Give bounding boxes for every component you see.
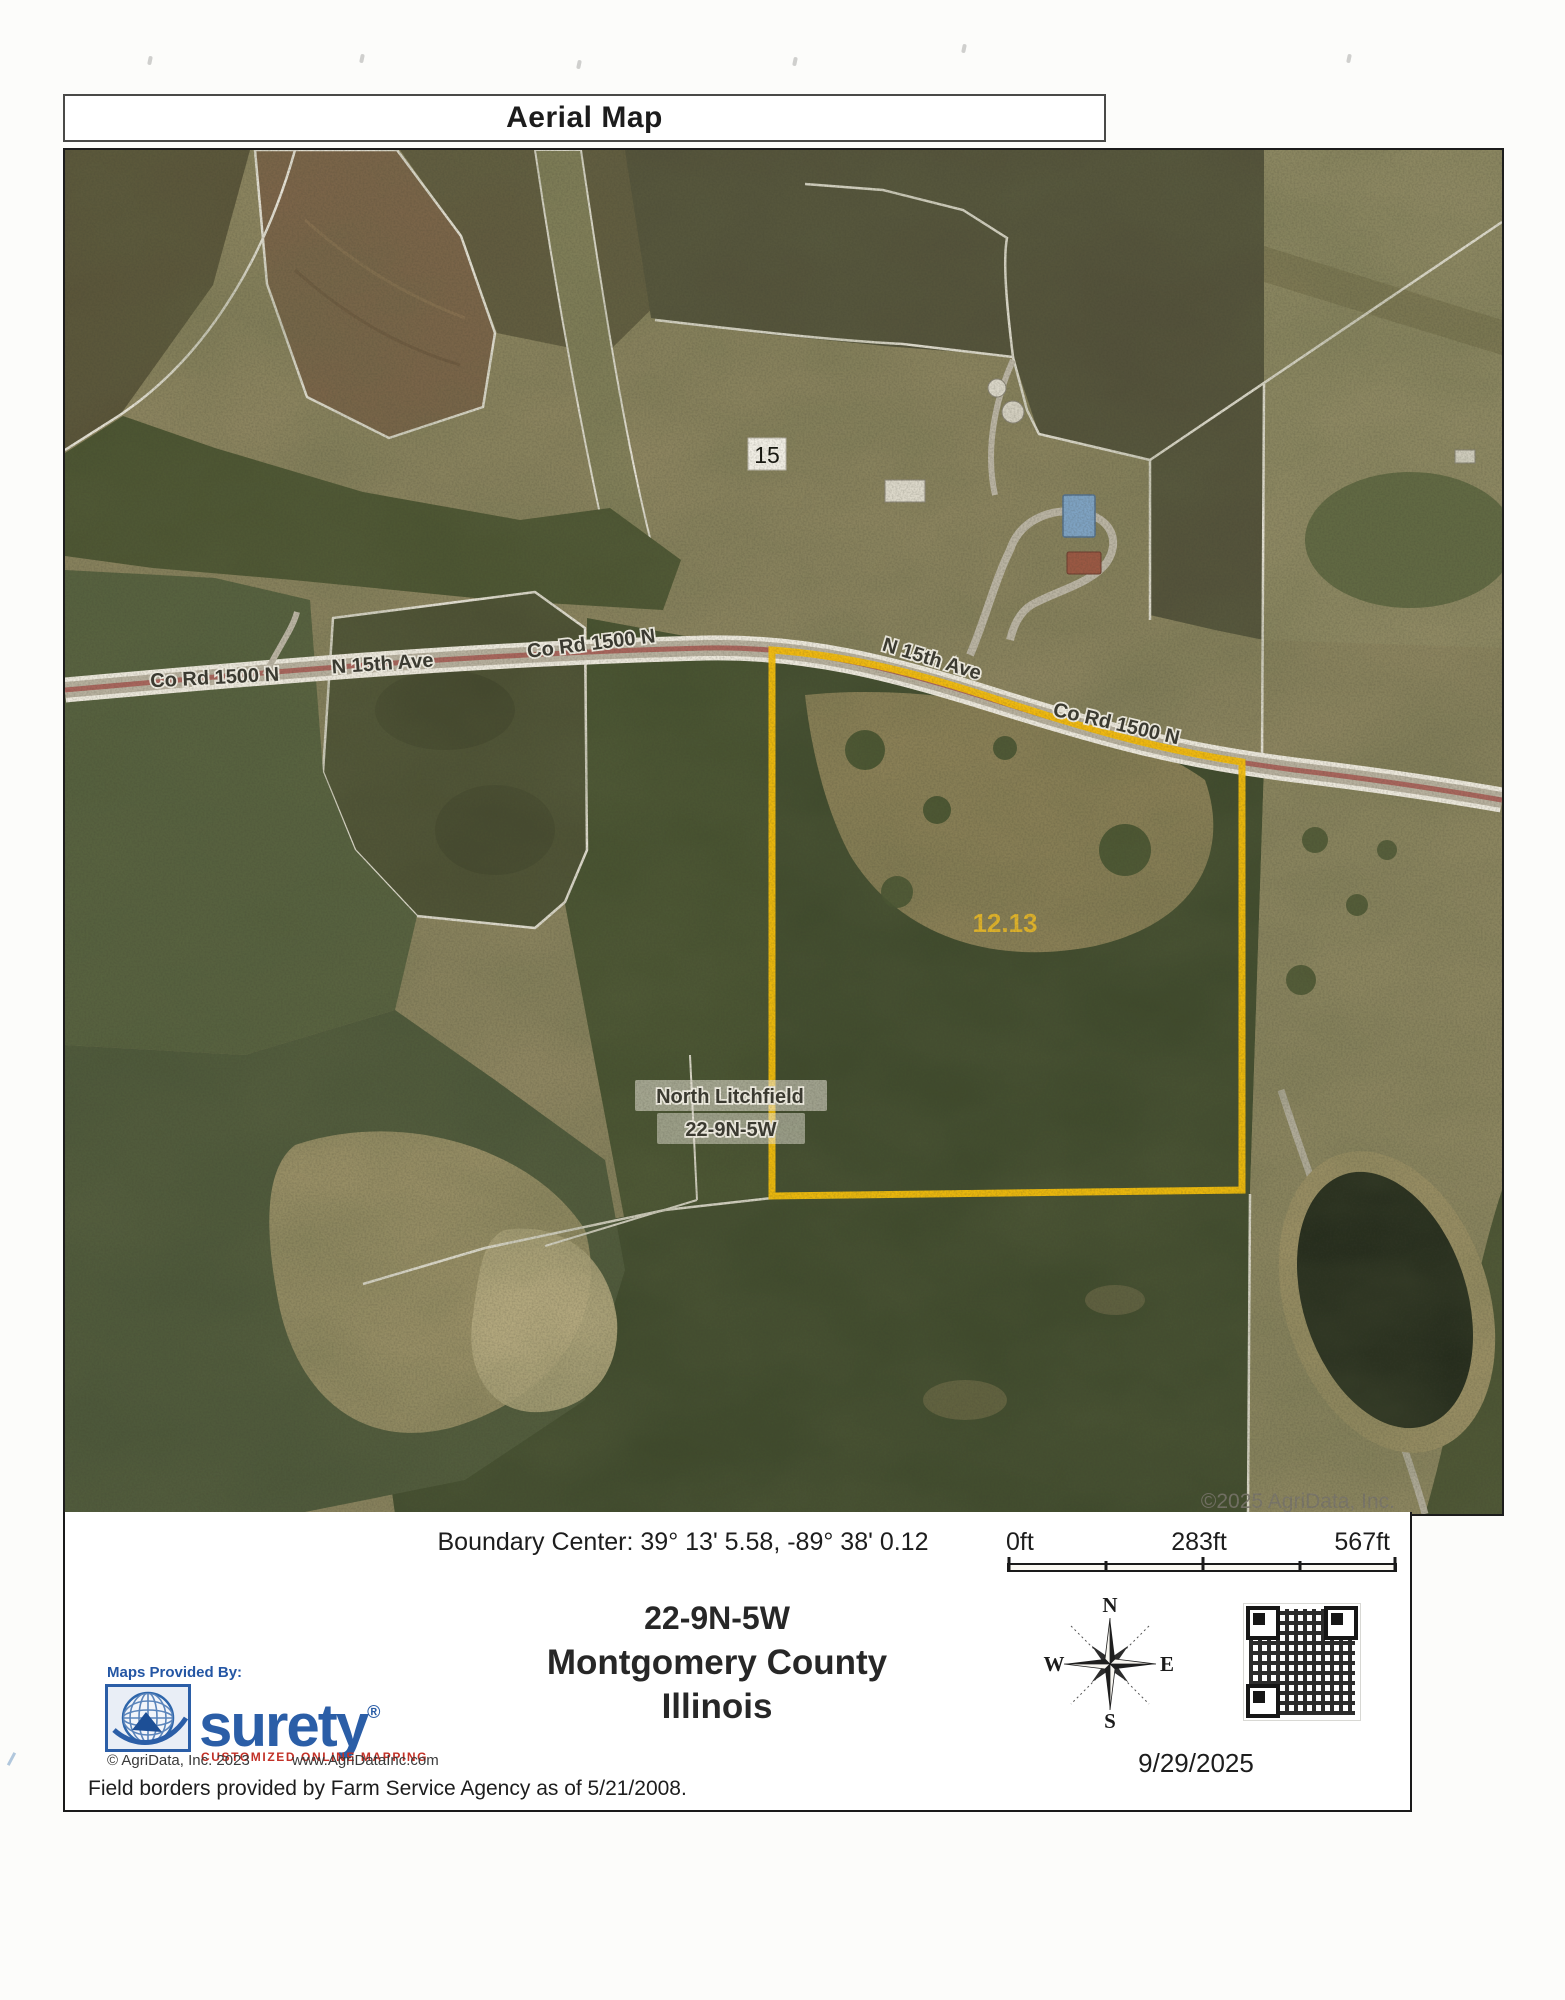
scan-artifact	[147, 56, 153, 66]
qr-finder-icon	[1246, 1684, 1280, 1718]
scan-artifact	[961, 44, 967, 54]
location-section: 22-9N-5W	[467, 1600, 967, 1637]
globe-icon	[105, 1684, 191, 1752]
scale-start-label: 0ft	[1006, 1528, 1034, 1557]
scan-artifact	[7, 1752, 16, 1766]
compass-rose-icon: N S W E	[1043, 1592, 1178, 1732]
map-date: 9/29/2025	[1096, 1748, 1296, 1779]
brand-name: surety®	[199, 1692, 380, 1759]
scan-artifact	[1346, 54, 1352, 64]
aerial-map-frame: 15 Co Rd 1500 N N 15th Ave Co Rd 1500 N …	[63, 148, 1504, 1516]
scale-end-label: 567ft	[1290, 1528, 1390, 1557]
scan-artifact	[576, 60, 582, 70]
compass-n: N	[1102, 1593, 1117, 1617]
qr-code	[1243, 1603, 1361, 1721]
scale-bar	[1006, 1556, 1398, 1578]
scan-artifact	[792, 57, 798, 67]
qr-finder-icon	[1246, 1606, 1280, 1640]
website: www.AgriDataInc.com	[292, 1752, 439, 1769]
page-title: Aerial Map	[506, 101, 663, 135]
location-block: 22-9N-5W Montgomery County Illinois	[467, 1600, 967, 1727]
compass-w: W	[1044, 1652, 1065, 1676]
provider-label: Maps Provided By:	[107, 1664, 242, 1681]
title-box: Aerial Map	[63, 94, 1106, 142]
disclaimer: Field borders provided by Farm Service A…	[88, 1777, 687, 1801]
photo-grain	[65, 150, 1502, 1514]
copyright: © AgriData, Inc. 2023	[107, 1752, 250, 1769]
registered-mark: ®	[367, 1702, 380, 1722]
boundary-center-label: Boundary Center: 39° 13' 5.58, -89° 38' …	[283, 1528, 1083, 1557]
scale-mid-label: 283ft	[1149, 1528, 1249, 1557]
compass-s: S	[1104, 1709, 1116, 1732]
scan-artifact	[359, 54, 365, 64]
aerial-map: 15 Co Rd 1500 N N 15th Ave Co Rd 1500 N …	[65, 150, 1502, 1514]
qr-finder-icon	[1324, 1606, 1358, 1640]
compass-e: E	[1160, 1652, 1174, 1676]
location-state: Illinois	[467, 1687, 967, 1727]
location-county: Montgomery County	[467, 1643, 967, 1683]
